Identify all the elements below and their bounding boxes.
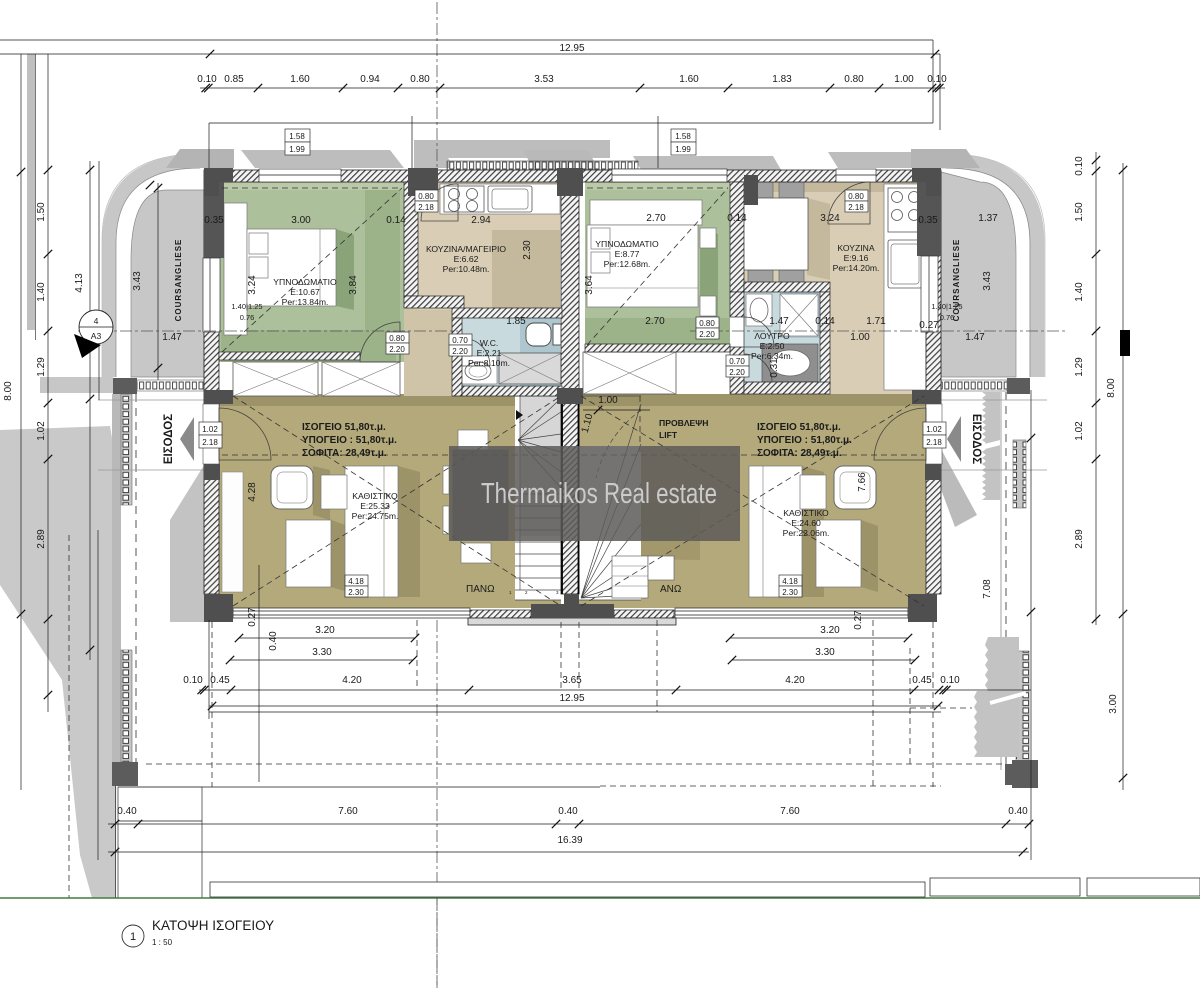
svg-text:3.30: 3.30 <box>815 647 835 658</box>
svg-text:2.18: 2.18 <box>848 203 864 212</box>
svg-text:0.80: 0.80 <box>389 334 405 343</box>
svg-text:4.18: 4.18 <box>782 577 798 586</box>
svg-text:3.24: 3.24 <box>247 275 258 295</box>
svg-text:1.29: 1.29 <box>36 357 47 377</box>
svg-text:0.27: 0.27 <box>247 607 258 627</box>
svg-text:3.24: 3.24 <box>820 213 840 224</box>
svg-text:3.20: 3.20 <box>315 625 335 636</box>
svg-text:4.13: 4.13 <box>74 273 85 293</box>
svg-text:ΚΑΤΟΨΗ ΙΣΟΓΕΙΟΥ: ΚΑΤΟΨΗ ΙΣΟΓΕΙΟΥ <box>152 918 274 933</box>
svg-text:1.02: 1.02 <box>1074 421 1085 441</box>
svg-text:2.18: 2.18 <box>418 203 434 212</box>
svg-text:2.70: 2.70 <box>646 213 666 224</box>
svg-text:3.43: 3.43 <box>982 271 993 291</box>
svg-text:2.18: 2.18 <box>926 438 942 447</box>
svg-text:E:6.62: E:6.62 <box>454 254 479 264</box>
svg-text:0.10: 0.10 <box>927 74 947 85</box>
svg-text:2.20: 2.20 <box>699 330 715 339</box>
svg-text:COURSANGLIESE: COURSANGLIESE <box>952 239 961 322</box>
svg-text:ΣΟΦΙΤΑ: 28,49τ.μ.: ΣΟΦΙΤΑ: 28,49τ.μ. <box>302 448 387 459</box>
svg-text:E:24.60: E:24.60 <box>791 518 821 528</box>
svg-text:Per:12.68m.: Per:12.68m. <box>604 259 651 269</box>
svg-text:2.30: 2.30 <box>522 240 533 260</box>
svg-text:1.40: 1.40 <box>1074 282 1085 302</box>
svg-text:0.10: 0.10 <box>940 675 960 686</box>
svg-text:7.08: 7.08 <box>982 579 993 599</box>
svg-text:Per:8.10m.: Per:8.10m. <box>468 358 510 368</box>
svg-text:LIFT: LIFT <box>659 430 678 440</box>
svg-text:2.20: 2.20 <box>389 345 405 354</box>
svg-text:3.64: 3.64 <box>584 275 595 295</box>
svg-text:Per:24.75m.: Per:24.75m. <box>352 511 399 521</box>
svg-text:16.39: 16.39 <box>557 835 582 846</box>
svg-text:3.00: 3.00 <box>1108 694 1119 714</box>
svg-text:12.95: 12.95 <box>559 693 584 704</box>
svg-text:1.58: 1.58 <box>675 132 691 141</box>
svg-text:7.66: 7.66 <box>857 472 868 492</box>
svg-text:1.60: 1.60 <box>679 74 699 85</box>
svg-text:1.71: 1.71 <box>866 316 886 327</box>
svg-text:1.00: 1.00 <box>598 395 618 406</box>
svg-text:1.02: 1.02 <box>926 425 942 434</box>
svg-text:1.02: 1.02 <box>202 425 218 434</box>
svg-text:3.20: 3.20 <box>820 625 840 636</box>
svg-text:E:10.67: E:10.67 <box>290 287 320 297</box>
svg-text:8.00: 8.00 <box>3 381 14 401</box>
svg-text:ΥΠΟΓΕΙΟ : 51,80τ.μ.: ΥΠΟΓΕΙΟ : 51,80τ.μ. <box>302 435 397 446</box>
svg-text:E:2.21: E:2.21 <box>477 348 502 358</box>
svg-text:Per:14.20m.: Per:14.20m. <box>833 263 880 273</box>
svg-text:0.14: 0.14 <box>815 316 835 327</box>
svg-text:2.94: 2.94 <box>471 215 491 226</box>
svg-text:ΕΙΣΟΔΟΣ: ΕΙΣΟΔΟΣ <box>163 414 175 464</box>
svg-text:1.40: 1.40 <box>36 282 47 302</box>
svg-text:Per:13.84m.: Per:13.84m. <box>282 297 329 307</box>
svg-text:ΚΟΥΖΙΝΑ/ΜΑΓΕΙΡΙΟ: ΚΟΥΖΙΝΑ/ΜΑΓΕΙΡΙΟ <box>426 244 506 254</box>
svg-text:ΛΟΥΤΡΟ: ΛΟΥΤΡΟ <box>754 331 790 341</box>
svg-text:1.47: 1.47 <box>162 332 182 343</box>
svg-text:ΠΡΟΒΛΕΨΗ: ΠΡΟΒΛΕΨΗ <box>659 418 708 428</box>
svg-text:ΚΑΘΙΣΤΙΚΟ: ΚΑΘΙΣΤΙΚΟ <box>352 491 398 501</box>
svg-text:0.80: 0.80 <box>848 192 864 201</box>
svg-text:ΥΠΝΟΔΩΜΑΤΙΟ: ΥΠΝΟΔΩΜΑΤΙΟ <box>273 277 337 287</box>
svg-text:1 : 50: 1 : 50 <box>152 938 173 947</box>
svg-text:ΚΟΥΖΙΝΑ: ΚΟΥΖΙΝΑ <box>837 243 874 253</box>
svg-text:1.50: 1.50 <box>36 202 47 222</box>
svg-text:Per:22.06m.: Per:22.06m. <box>783 528 830 538</box>
svg-text:0.45: 0.45 <box>210 675 230 686</box>
svg-text:12.95: 12.95 <box>559 43 584 54</box>
svg-text:Thermaikos Real estate: Thermaikos Real estate <box>481 478 717 510</box>
svg-text:0.40: 0.40 <box>268 631 279 651</box>
svg-text:1.02: 1.02 <box>36 421 47 441</box>
svg-text:0.40: 0.40 <box>558 806 578 817</box>
svg-text:1.00: 1.00 <box>894 74 914 85</box>
svg-text:3.53: 3.53 <box>534 74 554 85</box>
svg-text:0.80: 0.80 <box>418 192 434 201</box>
svg-text:2.70: 2.70 <box>645 316 665 327</box>
svg-text:3.30: 3.30 <box>312 647 332 658</box>
svg-text:0.27: 0.27 <box>853 610 864 630</box>
svg-text:ΑΝΩ: ΑΝΩ <box>660 584 682 595</box>
svg-text:COURSANGLIESE: COURSANGLIESE <box>174 239 183 322</box>
svg-text:Per:10.48m.: Per:10.48m. <box>443 264 490 274</box>
svg-text:1.00: 1.00 <box>850 332 870 343</box>
svg-text:1.85: 1.85 <box>506 316 526 327</box>
svg-text:2.30: 2.30 <box>348 588 364 597</box>
svg-text:ΠΑΝΩ: ΠΑΝΩ <box>466 584 495 595</box>
svg-text:2.20: 2.20 <box>452 347 468 356</box>
svg-text:0.10: 0.10 <box>1074 156 1085 176</box>
svg-text:0.40: 0.40 <box>117 806 137 817</box>
svg-text:0.14: 0.14 <box>727 213 747 224</box>
svg-text:1.37: 1.37 <box>978 213 998 224</box>
svg-text:0.10: 0.10 <box>183 675 203 686</box>
svg-text:ΚΑΘΙΣΤΙΚΟ: ΚΑΘΙΣΤΙΚΟ <box>783 508 829 518</box>
svg-text:1.99: 1.99 <box>675 145 691 154</box>
svg-text:0.35: 0.35 <box>918 215 938 226</box>
svg-text:E:8.77: E:8.77 <box>615 249 640 259</box>
svg-text:1: 1 <box>130 931 136 943</box>
svg-text:2.30: 2.30 <box>782 588 798 597</box>
svg-text:3.65: 3.65 <box>562 675 582 686</box>
svg-text:0.85: 0.85 <box>224 74 244 85</box>
svg-text:1.99: 1.99 <box>289 145 305 154</box>
svg-text:Per:6.34m.: Per:6.34m. <box>751 351 793 361</box>
svg-text:4.20: 4.20 <box>342 675 362 686</box>
svg-text:ΕΙΣΟΔΟΣ: ΕΙΣΟΔΟΣ <box>970 414 982 464</box>
svg-text:ΙΣΟΓΕΙΟ 51,80τ.μ.: ΙΣΟΓΕΙΟ 51,80τ.μ. <box>757 422 841 433</box>
svg-text:0.76: 0.76 <box>240 313 255 322</box>
svg-text:0.80: 0.80 <box>844 74 864 85</box>
svg-text:ΣΟΦΙΤΑ: 28,49τ.μ.: ΣΟΦΙΤΑ: 28,49τ.μ. <box>757 448 842 459</box>
svg-text:2.89: 2.89 <box>36 529 47 549</box>
svg-text:7.60: 7.60 <box>338 806 358 817</box>
svg-text:3.43: 3.43 <box>132 271 143 291</box>
svg-text:0.10: 0.10 <box>197 74 217 85</box>
svg-text:ΙΣΟΓΕΙΟ 51,80τ.μ.: ΙΣΟΓΕΙΟ 51,80τ.μ. <box>302 422 386 433</box>
svg-text:7.60: 7.60 <box>780 806 800 817</box>
svg-text:0.70: 0.70 <box>452 336 468 345</box>
svg-text:2.18: 2.18 <box>202 438 218 447</box>
svg-text:4: 4 <box>94 316 99 326</box>
svg-text:1.29: 1.29 <box>1074 357 1085 377</box>
svg-text:8.00: 8.00 <box>1106 378 1117 398</box>
svg-text:3.00: 3.00 <box>291 215 311 226</box>
svg-text:1.47: 1.47 <box>965 332 985 343</box>
svg-text:0.94: 0.94 <box>360 74 380 85</box>
svg-text:3.84: 3.84 <box>348 275 359 295</box>
svg-text:2.20: 2.20 <box>729 368 745 377</box>
svg-text:1.83: 1.83 <box>772 74 792 85</box>
svg-text:1.60: 1.60 <box>290 74 310 85</box>
svg-text:ΥΠΟΓΕΙΟ : 51,80τ.μ.: ΥΠΟΓΕΙΟ : 51,80τ.μ. <box>757 435 852 446</box>
svg-text:4.18: 4.18 <box>348 577 364 586</box>
svg-text:1.58: 1.58 <box>289 132 305 141</box>
svg-text:ΥΠΝΟΔΩΜΑΤΙΟ: ΥΠΝΟΔΩΜΑΤΙΟ <box>595 239 659 249</box>
svg-text:0.27: 0.27 <box>919 320 939 331</box>
svg-text:4.20: 4.20 <box>785 675 805 686</box>
svg-text:A3: A3 <box>91 331 102 341</box>
svg-text:4.28: 4.28 <box>247 482 258 502</box>
svg-text:0.40: 0.40 <box>1008 806 1028 817</box>
svg-text:0.80: 0.80 <box>410 74 430 85</box>
svg-text:1.40|1.25: 1.40|1.25 <box>231 302 262 311</box>
svg-text:0.35: 0.35 <box>204 215 224 226</box>
svg-text:E:25.33: E:25.33 <box>360 501 390 511</box>
svg-text:0.70: 0.70 <box>729 357 745 366</box>
svg-text:W.C.: W.C. <box>480 338 499 348</box>
svg-text:E:2.50: E:2.50 <box>760 341 785 351</box>
svg-text:1.47: 1.47 <box>769 316 789 327</box>
svg-text:1.50: 1.50 <box>1074 202 1085 222</box>
svg-text:E:9.16: E:9.16 <box>844 253 869 263</box>
svg-text:0.45: 0.45 <box>912 675 932 686</box>
svg-text:0.14: 0.14 <box>386 215 406 226</box>
svg-text:2.89: 2.89 <box>1074 529 1085 549</box>
svg-text:0.80: 0.80 <box>699 319 715 328</box>
